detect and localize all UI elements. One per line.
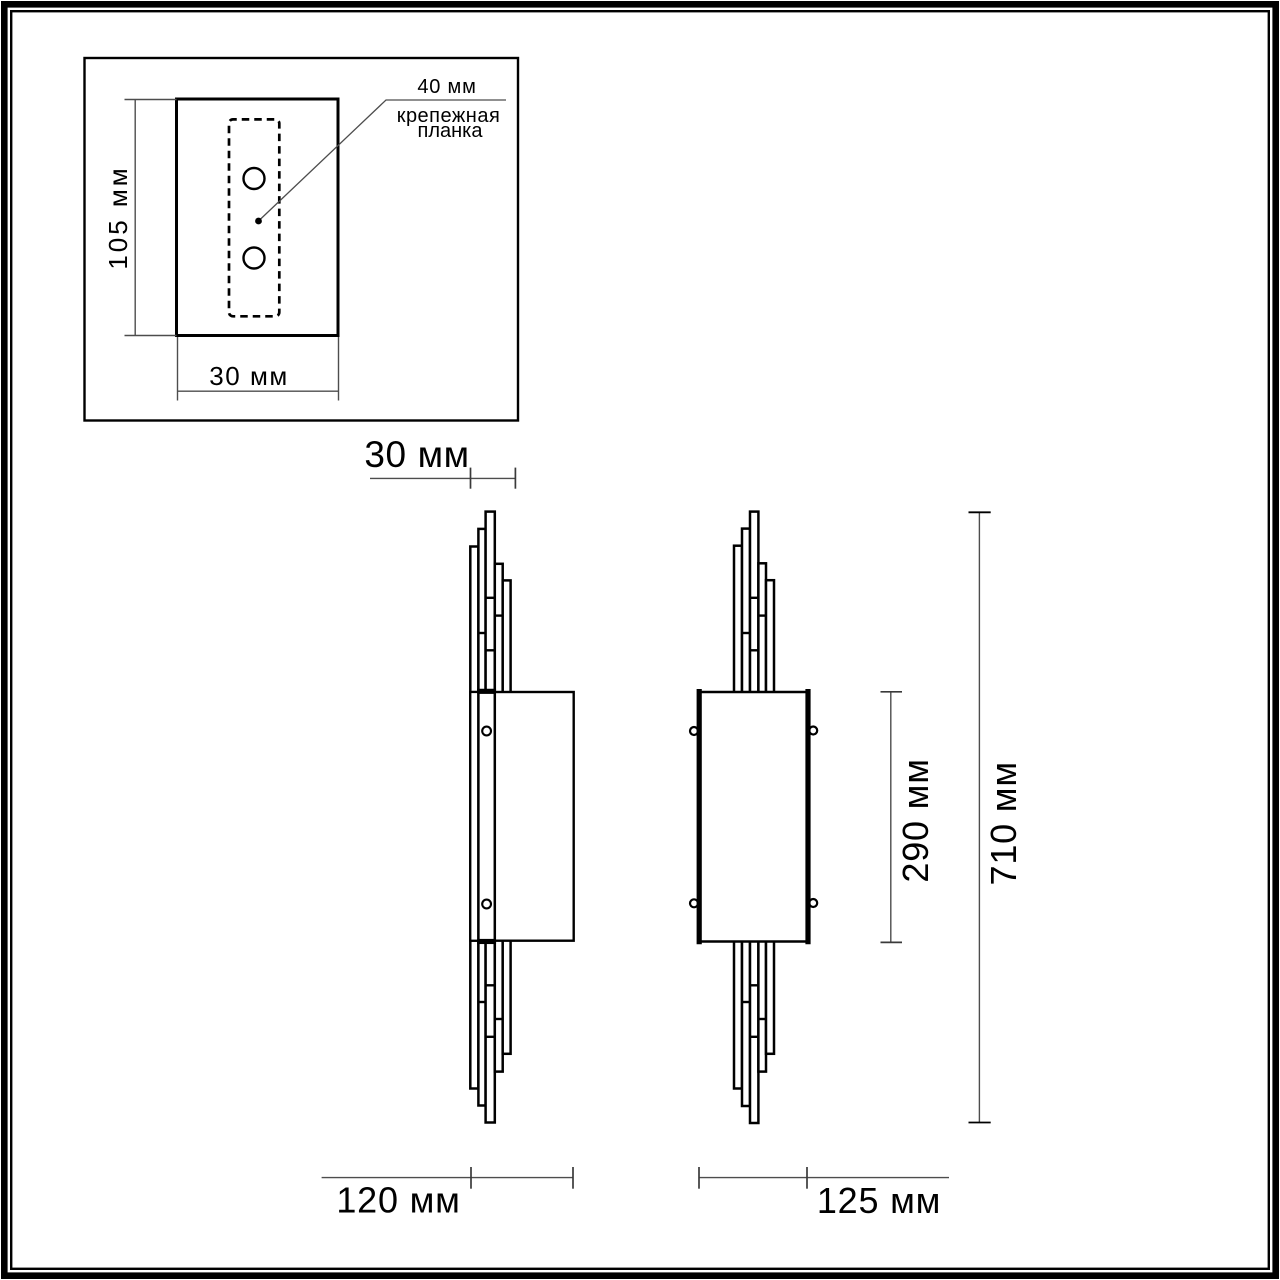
svg-text:30 мм: 30 мм	[209, 361, 288, 391]
svg-text:125 мм: 125 мм	[817, 1180, 941, 1221]
svg-text:290 мм: 290 мм	[895, 758, 936, 882]
svg-text:120 мм: 120 мм	[336, 1180, 460, 1221]
svg-text:40 мм: 40 мм	[417, 76, 476, 98]
svg-text:105 мм: 105 мм	[103, 165, 133, 269]
svg-text:30 мм: 30 мм	[364, 434, 469, 475]
svg-text:710 мм: 710 мм	[983, 761, 1024, 885]
svg-text:планка: планка	[418, 120, 484, 142]
